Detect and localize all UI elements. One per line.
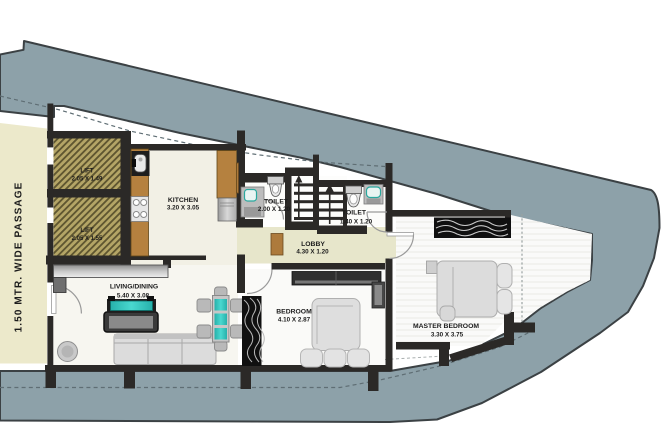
- svg-text:2.00 X 1.20: 2.00 X 1.20: [258, 206, 291, 213]
- svg-text:LIFT: LIFT: [80, 168, 93, 175]
- svg-text:5.40 X 3.08: 5.40 X 3.08: [117, 293, 150, 300]
- svg-text:1.50 MTR. WIDE PASSAGE: 1.50 MTR. WIDE PASSAGE: [14, 182, 25, 333]
- svg-text:LOBBY: LOBBY: [301, 241, 325, 248]
- svg-text:4.30 X 1.20: 4.30 X 1.20: [296, 249, 329, 256]
- svg-text:TOILET: TOILET: [264, 199, 289, 206]
- svg-text:2.05 X 1.55: 2.05 X 1.55: [72, 236, 103, 242]
- svg-text:LIVING/DINING: LIVING/DINING: [110, 284, 158, 291]
- svg-text:4.10 X 2.87: 4.10 X 2.87: [278, 317, 311, 324]
- svg-text:1.40 X 1.20: 1.40 X 1.20: [340, 219, 373, 226]
- svg-text:LIFT: LIFT: [80, 227, 93, 234]
- svg-text:3.20 X 3.05: 3.20 X 3.05: [167, 205, 200, 212]
- svg-text:BEDROOM: BEDROOM: [276, 309, 312, 316]
- svg-text:KITCHEN: KITCHEN: [168, 197, 198, 204]
- svg-text:3.30 X 3.75: 3.30 X 3.75: [431, 332, 464, 339]
- svg-text:MASTER BEDROOM: MASTER BEDROOM: [413, 323, 479, 330]
- svg-text:TOILET: TOILET: [342, 210, 367, 217]
- svg-text:2.05 X 1.49: 2.05 X 1.49: [72, 177, 103, 183]
